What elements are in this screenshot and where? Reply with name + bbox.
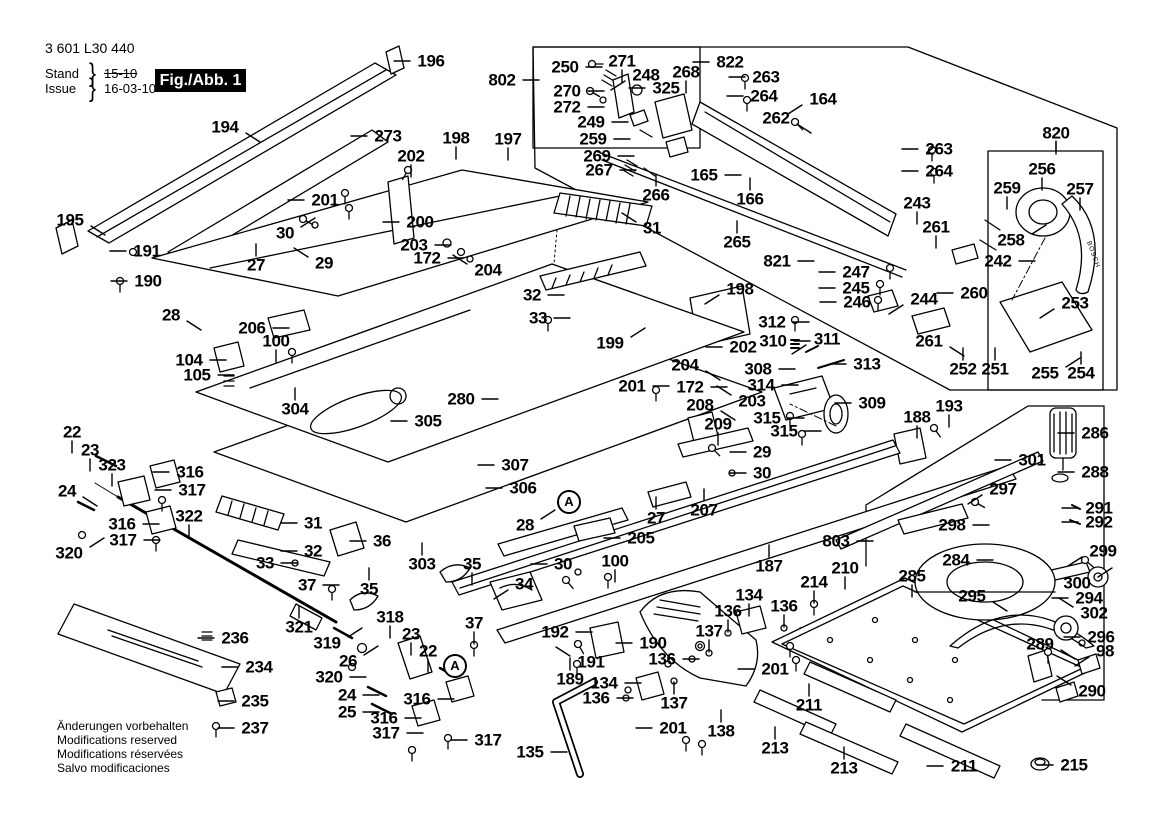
part-label-316: 316 [176, 464, 203, 481]
part-label-100: 100 [262, 333, 289, 350]
modification-note-line: Salvo modificaciones [57, 761, 188, 775]
part-label-189: 189 [556, 671, 583, 688]
part-label-165: 165 [690, 167, 717, 184]
part-label-136: 136 [714, 603, 741, 620]
part-label-197: 197 [494, 131, 521, 148]
part-label-319: 319 [313, 635, 340, 652]
part-label-35: 35 [463, 556, 481, 573]
part-label-30: 30 [554, 556, 572, 573]
part-label-208: 208 [686, 397, 713, 414]
part-label-35: 35 [360, 581, 378, 598]
part-label-105: 105 [183, 367, 210, 384]
part-label-209: 209 [704, 416, 731, 433]
mitre-plate-234 [58, 604, 240, 694]
part-label-254: 254 [1067, 365, 1094, 382]
clamp-235 [216, 688, 236, 706]
part-label-820: 820 [1042, 125, 1069, 142]
part-label-27: 27 [647, 510, 665, 527]
part-label-256: 256 [1028, 161, 1055, 178]
part-label-821: 821 [763, 253, 790, 270]
part-label-244: 244 [910, 291, 937, 308]
part-label-249: 249 [577, 114, 604, 131]
part-label-237: 237 [241, 720, 268, 737]
part-label-200: 200 [406, 214, 433, 231]
part-label-198: 198 [442, 130, 469, 147]
part-label-297: 297 [989, 481, 1016, 498]
part-label-290: 290 [1078, 683, 1105, 700]
part-label-263: 263 [752, 69, 779, 86]
part-label-100: 100 [601, 553, 628, 570]
part-label-213: 213 [830, 760, 857, 777]
part-label-802: 802 [488, 72, 515, 89]
title-block: 3 601 L30 440 Stand } 15-10 Issue } 16-0… [45, 40, 156, 96]
clamp-small-parts [868, 220, 1000, 334]
part-label-210: 210 [831, 560, 858, 577]
part-label-234: 234 [245, 659, 272, 676]
part-label-246: 246 [843, 294, 870, 311]
part-label-34: 34 [515, 576, 533, 593]
part-label-309: 309 [858, 395, 885, 412]
part-label-325: 325 [652, 80, 679, 97]
issue-label: Issue [45, 82, 89, 95]
part-label-318: 318 [376, 609, 403, 626]
plate-188 [894, 428, 926, 464]
part-label-316: 316 [403, 691, 430, 708]
part-label-265: 265 [723, 234, 750, 251]
part-label-301: 301 [1018, 452, 1045, 469]
part-label-292: 292 [1085, 514, 1112, 531]
part-label-29: 29 [315, 255, 333, 272]
part-label-30: 30 [753, 465, 771, 482]
part-label-98: 98 [1096, 643, 1114, 660]
clamp-316b [146, 506, 176, 534]
part-label-164: 164 [809, 91, 836, 108]
part-label-262: 262 [762, 110, 789, 127]
modification-note-line: Modifications réservées [57, 747, 188, 761]
part-label-37: 37 [298, 577, 316, 594]
part-label-236: 236 [221, 630, 248, 647]
part-label-317: 317 [372, 725, 399, 742]
part-label-253: 253 [1061, 295, 1088, 312]
parts-diagram-page: BOSCH [0, 0, 1166, 824]
part-label-295: 295 [958, 588, 985, 605]
spring-236 [202, 632, 212, 640]
issue-value: 16-03-10 [104, 82, 156, 95]
part-label-135: 135 [516, 744, 543, 761]
part-label-191: 191 [577, 654, 604, 671]
part-label-136: 136 [648, 651, 675, 668]
part-label-22: 22 [419, 643, 437, 660]
part-label-195: 195 [56, 212, 83, 229]
part-label-215: 215 [1060, 757, 1087, 774]
roller-309 [824, 395, 848, 433]
part-label-312: 312 [758, 314, 785, 331]
part-label-23: 23 [81, 442, 99, 459]
part-label-204: 204 [671, 357, 698, 374]
part-label-258: 258 [997, 232, 1024, 249]
part-label-323: 323 [98, 457, 125, 474]
block-323 [118, 476, 150, 506]
part-label-267: 267 [585, 162, 612, 179]
part-label-25: 25 [338, 704, 356, 721]
part-label-24: 24 [338, 687, 356, 704]
part-label-255: 255 [1031, 365, 1058, 382]
part-label-207: 207 [690, 502, 717, 519]
part-label-284: 284 [942, 552, 969, 569]
part-label-822: 822 [716, 54, 743, 71]
part-label-264: 264 [750, 88, 777, 105]
bosch-cap-257: BOSCH [1062, 196, 1101, 294]
clamp-knob-256 [1016, 188, 1070, 236]
washer-288 [1052, 474, 1068, 482]
part-label-261: 261 [915, 333, 942, 350]
stand-value: 15-10 [104, 67, 137, 80]
part-label-310: 310 [759, 333, 786, 350]
bracket-104 [214, 342, 244, 372]
part-label-172: 172 [413, 250, 440, 267]
plate-27b [648, 482, 691, 507]
part-label-37: 37 [465, 615, 483, 632]
part-label-317: 317 [109, 532, 136, 549]
part-label-31: 31 [304, 515, 322, 532]
part-label-243: 243 [903, 195, 930, 212]
part-label-266: 266 [642, 187, 669, 204]
part-label-321: 321 [285, 619, 312, 636]
part-label-317: 317 [178, 482, 205, 499]
foot-215 [1031, 758, 1049, 770]
clamp-316c [446, 676, 474, 702]
part-label-137: 137 [695, 623, 722, 640]
part-label-28: 28 [516, 517, 534, 534]
part-label-31: 31 [643, 220, 661, 237]
part-label-202: 202 [397, 148, 424, 165]
modification-note-line: Modifications reserved [57, 733, 188, 747]
part-label-194: 194 [211, 119, 238, 136]
part-label-166: 166 [736, 191, 763, 208]
part-label-136: 136 [770, 598, 797, 615]
part-label-252: 252 [949, 361, 976, 378]
part-label-315: 315 [770, 423, 797, 440]
part-label-803: 803 [822, 533, 849, 550]
part-label-286: 286 [1081, 425, 1108, 442]
part-label-201: 201 [761, 661, 788, 678]
part-label-302: 302 [1080, 605, 1107, 622]
part-label-257: 257 [1066, 181, 1093, 198]
part-label-213: 213 [761, 740, 788, 757]
figure-label: Fig./Abb. 1 [155, 69, 246, 92]
part-label-303: 303 [408, 556, 435, 573]
modification-notes: Änderungen vorbehaltenModifications rese… [57, 719, 188, 775]
part-label-202: 202 [729, 339, 756, 356]
part-label-211: 211 [951, 758, 977, 775]
part-label-23: 23 [402, 626, 420, 643]
part-label-33: 33 [529, 310, 547, 327]
part-label-251: 251 [981, 361, 1008, 378]
part-label-198: 198 [726, 281, 753, 298]
part-label-203: 203 [738, 393, 765, 410]
part-label-263: 263 [925, 141, 952, 158]
part-label-304: 304 [281, 401, 308, 418]
part-label-28: 28 [162, 307, 180, 324]
end-clip-196 [386, 46, 404, 74]
part-label-313: 313 [853, 356, 880, 373]
part-label-317: 317 [474, 732, 501, 749]
part-label-201: 201 [311, 192, 338, 209]
part-label-211: 211 [796, 697, 822, 714]
type-number: 3 601 L30 440 [45, 40, 156, 57]
part-label-196: 196 [417, 53, 444, 70]
part-label-264: 264 [925, 163, 952, 180]
part-label-250: 250 [551, 59, 578, 76]
part-label-188: 188 [903, 409, 930, 426]
part-label-201: 201 [618, 378, 645, 395]
part-label-299: 299 [1089, 543, 1116, 560]
part-label-261: 261 [922, 219, 949, 236]
mitre-gauge-284 [915, 544, 1055, 620]
part-label-136: 136 [582, 690, 609, 707]
serrated-strip-31b [216, 496, 284, 530]
part-label-193: 193 [935, 398, 962, 415]
part-label-235: 235 [241, 693, 268, 710]
part-label-32: 32 [523, 287, 541, 304]
part-label-192: 192 [541, 624, 568, 641]
part-label-191: 191 [133, 243, 160, 260]
part-label-187: 187 [755, 558, 782, 575]
part-label-36: 36 [373, 533, 391, 550]
part-label-298: 298 [938, 517, 965, 534]
part-label-24: 24 [58, 483, 76, 500]
part-label-260: 260 [960, 285, 987, 302]
part-label-199: 199 [596, 335, 623, 352]
part-label-320: 320 [315, 669, 342, 686]
part-label-288: 288 [1081, 464, 1108, 481]
part-label-306: 306 [509, 480, 536, 497]
part-label-259: 259 [579, 131, 606, 148]
part-label-280: 280 [447, 391, 474, 408]
part-label-311: 311 [814, 331, 840, 348]
part-label-204: 204 [474, 262, 501, 279]
part-label-242: 242 [984, 253, 1011, 270]
brace-glyph: } [89, 75, 101, 101]
part-label-201: 201 [659, 720, 686, 737]
part-label-33: 33 [256, 555, 274, 572]
part-label-259: 259 [993, 180, 1020, 197]
part-label-27: 27 [247, 257, 265, 274]
part-label-322: 322 [175, 508, 202, 525]
part-label-285: 285 [898, 568, 925, 585]
part-label-307: 307 [501, 457, 528, 474]
part-label-172: 172 [676, 379, 703, 396]
detail-marker-A: A [557, 490, 581, 514]
part-label-137: 137 [660, 695, 687, 712]
part-label-32: 32 [304, 543, 322, 560]
part-label-22: 22 [63, 424, 81, 441]
clamp-36 [330, 522, 364, 556]
part-label-30: 30 [276, 225, 294, 242]
part-label-205: 205 [627, 530, 654, 547]
part-label-214: 214 [800, 574, 827, 591]
part-label-289: 289 [1026, 636, 1053, 653]
part-label-305: 305 [414, 413, 441, 430]
stand-label: Stand [45, 67, 89, 80]
part-label-190: 190 [134, 273, 161, 290]
part-label-273: 273 [374, 128, 401, 145]
modification-note-line: Änderungen vorbehalten [57, 719, 188, 733]
detail-marker-A: A [443, 654, 467, 678]
part-label-29: 29 [753, 444, 771, 461]
part-label-138: 138 [707, 723, 734, 740]
part-label-190: 190 [639, 635, 666, 652]
part-label-320: 320 [55, 545, 82, 562]
knob-286 [1050, 408, 1076, 470]
